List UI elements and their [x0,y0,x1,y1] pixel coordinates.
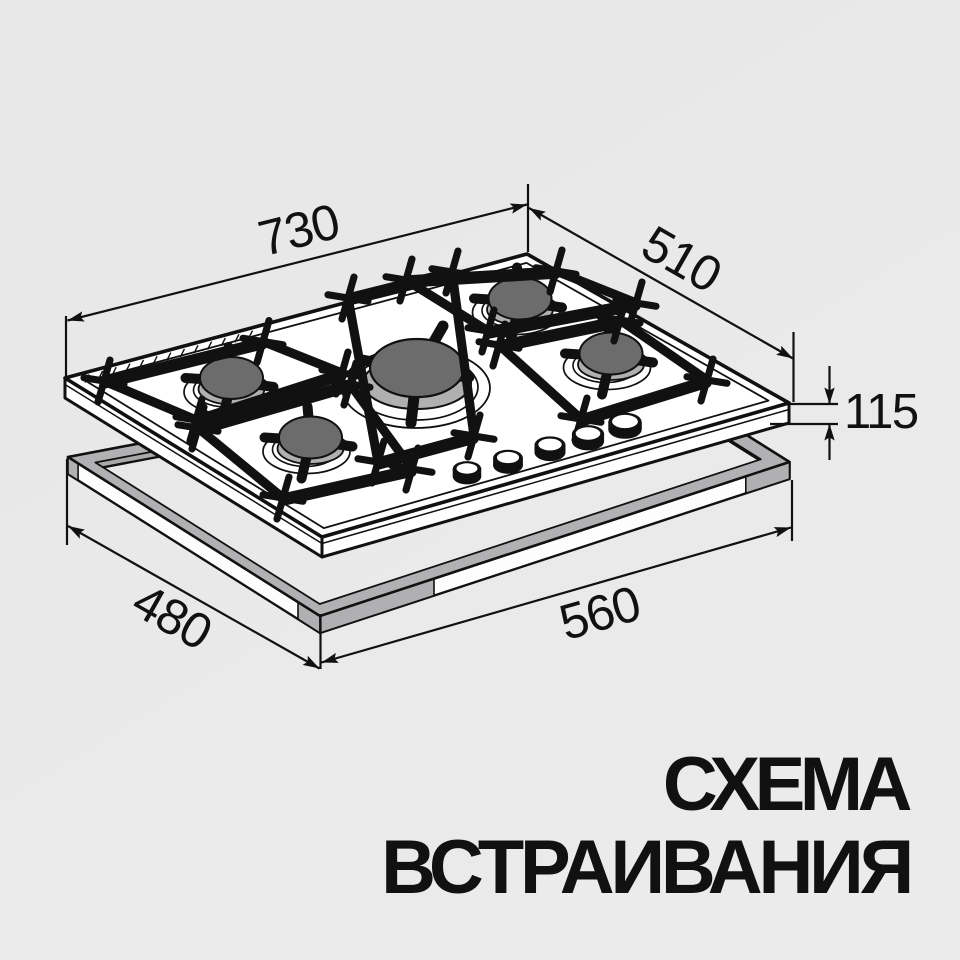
svg-text:115: 115 [844,385,918,439]
svg-text:СХЕМА: СХЕМА [663,742,911,827]
svg-text:ВСТРАИВАНИЯ: ВСТРАИВАНИЯ [381,825,910,910]
